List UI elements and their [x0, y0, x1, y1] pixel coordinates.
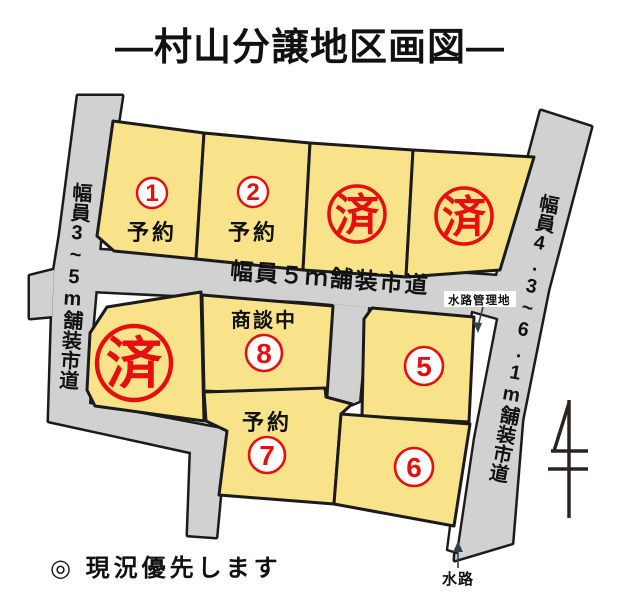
plot-1-number: 1 [145, 180, 158, 207]
plot-3-sold-stamp: 済 [329, 186, 385, 242]
plot-6-number: 6 [406, 452, 422, 483]
plot-2-number: 2 [246, 179, 259, 206]
waterway-managed-label: 水路管理地 [448, 293, 511, 307]
utility-pole-icon [548, 400, 588, 518]
plot-5-number: 5 [416, 351, 432, 382]
page-title: ―村山分譲地区画図― [115, 27, 505, 69]
plot-2-status: 予約 [228, 220, 278, 245]
sold-stamp-text: 済 [106, 332, 163, 395]
subdivision-map: ―村山分譲地区画図― ◎ 現況優先します 幅員５ｍ舗装市道 幅員3~5m舗装市道… [0, 0, 620, 603]
subdivision-map-page: ―村山分譲地区画図― ◎ 現況優先します 幅員５ｍ舗装市道 幅員3~5m舗装市道… [0, 0, 620, 603]
plot-8-number: 8 [256, 338, 272, 369]
sold-stamp-text: 済 [335, 191, 380, 240]
plot-southwest-sold-stamp: 済 [97, 326, 171, 400]
plot-7-status: 予約 [242, 410, 292, 435]
waterway-label: 水路 [442, 570, 474, 588]
plot-5-marker: 5 [405, 347, 443, 385]
note-text: ◎ 現況優先します [50, 555, 282, 582]
plot-8-status: 商談中 [231, 308, 297, 332]
sold-stamp-text: 済 [442, 193, 487, 242]
plot-4-sold-stamp: 済 [436, 188, 492, 244]
plot-1-status: 予約 [127, 220, 177, 245]
plot-7-number: 7 [259, 440, 275, 471]
plot-6-marker: 6 [395, 448, 433, 486]
